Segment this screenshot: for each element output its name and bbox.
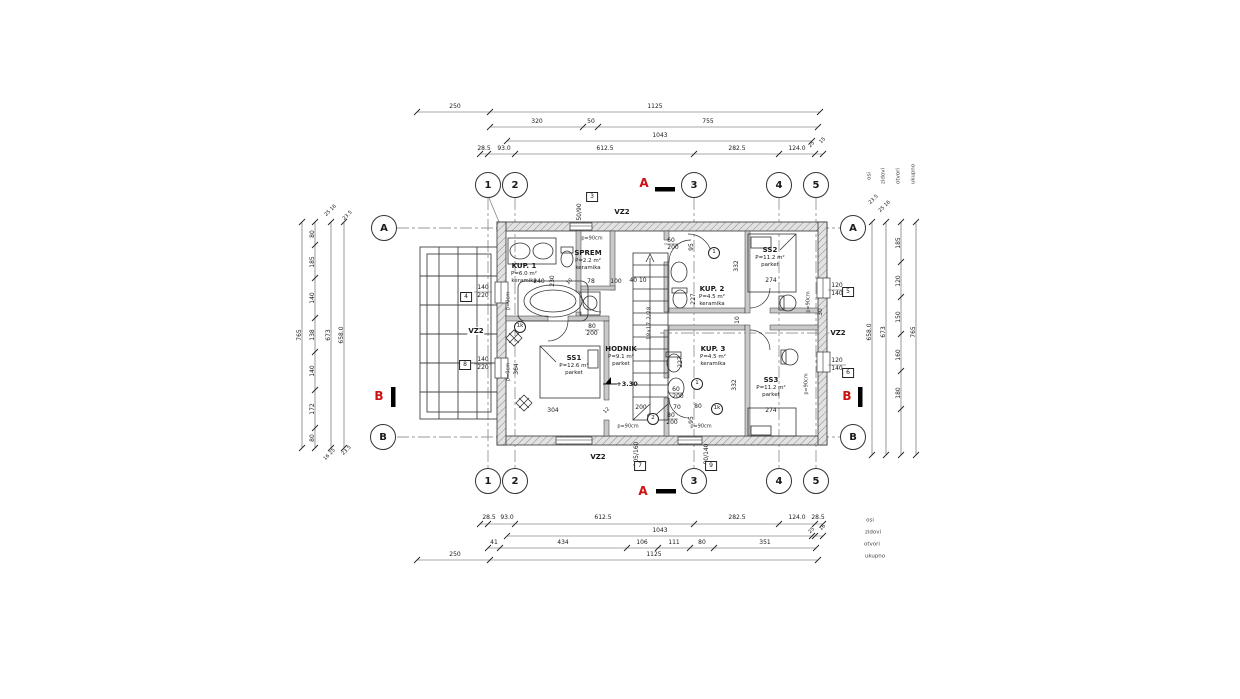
room-area: P=6.0 m² xyxy=(511,271,537,278)
room-floor: parket xyxy=(755,262,784,269)
floor-plan-canvas: 1 2 3 4 5 1 2 3 4 5 A B A B A A B B VZ2 … xyxy=(0,0,1240,699)
room-floor: keramika xyxy=(700,361,726,368)
room-label-hodnik: HODNIK P=9.1 m² parket xyxy=(605,345,637,368)
room-label-kup3: KUP. 3 P=4.5 m² keramika xyxy=(700,345,726,368)
grid-bubble-A-right: A xyxy=(840,215,866,241)
room-area: P=11.2 m² xyxy=(756,385,785,392)
room-name: KUP. 1 xyxy=(511,262,537,271)
section-marker-a-top: A xyxy=(639,176,648,190)
room-area: P=11.2 m² xyxy=(755,255,784,262)
wall-type-label-right: VZ2 xyxy=(829,329,846,337)
room-floor: parket xyxy=(756,392,785,399)
room-floor: keramika xyxy=(699,301,725,308)
room-label-ss2: SS2 P=11.2 m² parket xyxy=(755,246,784,269)
room-area: P=12.6 m² xyxy=(559,363,588,370)
room-name: KUP. 3 xyxy=(700,345,726,354)
grid-bubble-B-right: B xyxy=(840,424,866,450)
grid-bubble-4-bottom: 4 xyxy=(766,468,792,494)
room-label-kup2: KUP. 2 P=4.5 m² keramika xyxy=(699,285,725,308)
grid-bubble-2-top: 2 xyxy=(502,172,528,198)
wall-type-label-left: VZ2 xyxy=(467,327,484,335)
section-marker-b-left: B xyxy=(374,389,383,403)
room-floor: parket xyxy=(559,370,588,377)
grid-bubble-5-top: 5 xyxy=(803,172,829,198)
room-area: P=2.2 m² xyxy=(574,258,601,265)
room-floor: keramika xyxy=(511,278,537,285)
grid-bubble-1-bottom: 1 xyxy=(475,468,501,494)
room-name: SPREM xyxy=(574,249,601,258)
grid-bubble-1-top: 1 xyxy=(475,172,501,198)
room-label-ss3: SS3 P=11.2 m² parket xyxy=(756,376,785,399)
room-area: P=4.5 m² xyxy=(700,354,726,361)
wall-type-label-top: VZ2 xyxy=(613,208,630,216)
room-name: SS2 xyxy=(755,246,784,255)
room-label-sprem: SPREM P=2.2 m² keramika xyxy=(574,249,601,272)
grid-bubble-3-top: 3 xyxy=(681,172,707,198)
grid-bubble-5-bottom: 5 xyxy=(803,468,829,494)
grid-bubble-3-bottom: 3 xyxy=(681,468,707,494)
section-marker-b-right: B xyxy=(842,389,851,403)
room-area: P=4.5 m² xyxy=(699,294,725,301)
grid-bubble-4-top: 4 xyxy=(766,172,792,198)
grid-bubble-A-left: A xyxy=(371,215,397,241)
room-floor: keramika xyxy=(574,265,601,272)
room-name: HODNIK xyxy=(605,345,637,354)
room-name: SS3 xyxy=(756,376,785,385)
room-area: P=9.1 m² xyxy=(605,354,637,361)
grid-bubble-B-left: B xyxy=(370,424,396,450)
room-label-kup1: KUP. 1 P=6.0 m² keramika xyxy=(511,262,537,285)
room-label-ss1: SS1 P=12.6 m² parket xyxy=(559,354,588,377)
wall-type-label-bottom: VZ2 xyxy=(589,453,606,461)
room-floor: parket xyxy=(605,361,637,368)
room-name: KUP. 2 xyxy=(699,285,725,294)
room-name: SS1 xyxy=(559,354,588,363)
section-marker-a-bottom: A xyxy=(638,484,647,498)
grid-bubble-2-bottom: 2 xyxy=(502,468,528,494)
